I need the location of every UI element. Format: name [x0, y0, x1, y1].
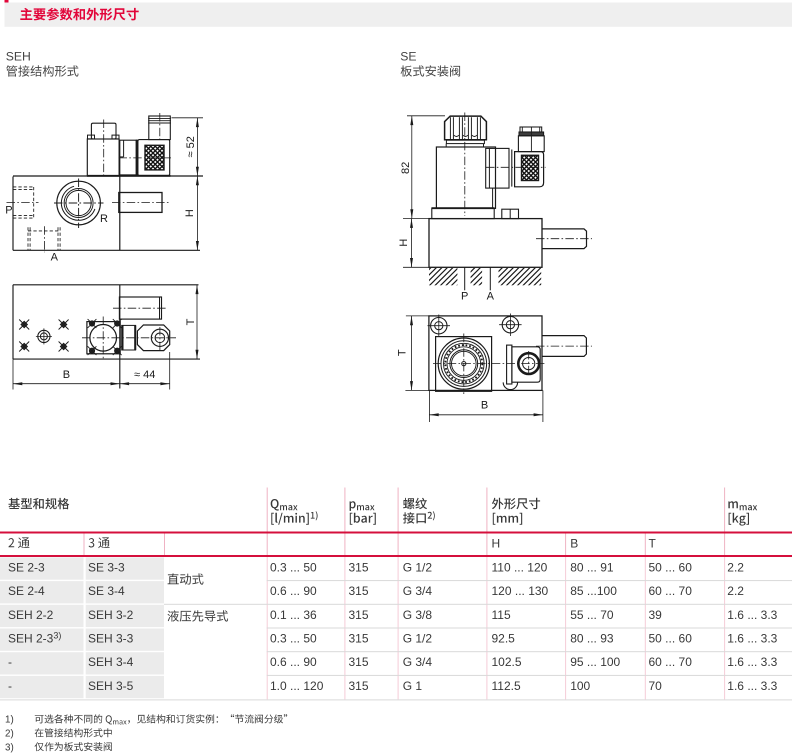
svg-text:SEH 3-2: SEH 3-2 [88, 608, 134, 622]
svg-text:SEH 3-4: SEH 3-4 [88, 655, 134, 669]
svg-text:B: B [570, 537, 578, 551]
svg-text:SEH 3-3: SEH 3-3 [88, 632, 134, 646]
svg-text:SEH 3-5: SEH 3-5 [88, 679, 134, 693]
svg-text:315: 315 [349, 608, 369, 622]
svg-text:P: P [461, 290, 468, 302]
svg-text:G 1: G 1 [403, 679, 423, 693]
svg-text:T: T [649, 537, 657, 551]
svg-text:G 3/4: G 3/4 [403, 584, 433, 598]
svg-text:80 ... 93: 80 ... 93 [570, 632, 614, 646]
svg-text:0.3 ... 50: 0.3 ... 50 [270, 632, 317, 646]
svg-text:G 1/2: G 1/2 [403, 632, 433, 646]
svg-text:SE 2-4: SE 2-4 [8, 584, 45, 598]
svg-text:1.6 ... 3.3: 1.6 ... 3.3 [727, 655, 777, 669]
svg-text:1.6 ... 3.3: 1.6 ... 3.3 [727, 632, 777, 646]
svg-text:-: - [8, 655, 12, 669]
svg-text:-: - [8, 679, 12, 693]
svg-text:315: 315 [349, 655, 369, 669]
svg-text:100: 100 [570, 679, 590, 693]
svg-text:60 ... 70: 60 ... 70 [649, 584, 693, 598]
svg-text:112.5: 112.5 [492, 679, 521, 693]
svg-text:80 ... 91: 80 ... 91 [570, 560, 614, 574]
svg-text:R: R [100, 213, 108, 225]
svg-text:115: 115 [492, 608, 511, 622]
svg-text:A: A [51, 252, 59, 264]
svg-text:0.6 ... 90: 0.6 ... 90 [270, 584, 317, 598]
svg-text:0.1 ... 36: 0.1 ... 36 [270, 608, 317, 622]
svg-text:SEH: SEH [6, 49, 31, 63]
svg-text:2): 2) [5, 728, 14, 739]
svg-text:85 ...100: 85 ...100 [570, 584, 617, 598]
svg-text:315: 315 [349, 679, 369, 693]
svg-text:110 ... 120: 110 ... 120 [492, 560, 548, 574]
svg-text:50 ... 60: 50 ... 60 [649, 632, 693, 646]
svg-text:315: 315 [349, 632, 369, 646]
svg-text:70: 70 [649, 679, 663, 693]
svg-text:≈ 52: ≈ 52 [185, 136, 197, 157]
svg-text:102.5: 102.5 [492, 655, 522, 669]
svg-text:3): 3) [5, 742, 14, 753]
svg-text:T: T [185, 318, 197, 325]
svg-text:95 ... 100: 95 ... 100 [570, 655, 620, 669]
svg-text:SEH 2-2: SEH 2-2 [8, 608, 54, 622]
svg-text:H: H [184, 209, 196, 217]
svg-text:SE 2-3: SE 2-3 [8, 560, 45, 574]
svg-text:1.0 ... 120: 1.0 ... 120 [270, 679, 324, 693]
svg-text:H: H [398, 239, 410, 247]
svg-text:SE: SE [400, 49, 416, 63]
svg-text:G 3/4: G 3/4 [403, 655, 433, 669]
svg-text:2.2: 2.2 [727, 560, 744, 574]
svg-text:1.6 ... 3.3: 1.6 ... 3.3 [727, 608, 777, 622]
svg-text:50 ... 60: 50 ... 60 [649, 560, 693, 574]
svg-text:SE 3-4: SE 3-4 [88, 584, 125, 598]
svg-text:60 ... 70: 60 ... 70 [649, 655, 693, 669]
svg-text:1.6 ... 3.3: 1.6 ... 3.3 [727, 679, 777, 693]
svg-text:B: B [63, 369, 70, 381]
svg-text:120 ... 130: 120 ... 130 [492, 584, 549, 598]
svg-text:T: T [396, 349, 408, 356]
svg-text:SE 3-3: SE 3-3 [88, 560, 125, 574]
svg-text:0.6 ... 90: 0.6 ... 90 [270, 655, 317, 669]
svg-text:0.3 ... 50: 0.3 ... 50 [270, 560, 317, 574]
svg-text:1): 1) [5, 715, 14, 726]
svg-text:55 ... 70: 55 ... 70 [570, 608, 614, 622]
svg-text:≈ 44: ≈ 44 [134, 369, 155, 381]
svg-text:P: P [5, 204, 12, 216]
svg-text:315: 315 [349, 584, 369, 598]
svg-text:G 3/8: G 3/8 [403, 608, 433, 622]
svg-text:82: 82 [400, 162, 412, 174]
svg-text:H: H [492, 537, 501, 551]
svg-text:39: 39 [649, 608, 663, 622]
svg-text:B: B [481, 400, 488, 412]
svg-text:315: 315 [349, 560, 369, 574]
svg-text:G 1/2: G 1/2 [403, 560, 433, 574]
svg-text:92.5: 92.5 [492, 632, 516, 646]
svg-text:A: A [487, 290, 495, 302]
svg-text:2.2: 2.2 [727, 584, 744, 598]
